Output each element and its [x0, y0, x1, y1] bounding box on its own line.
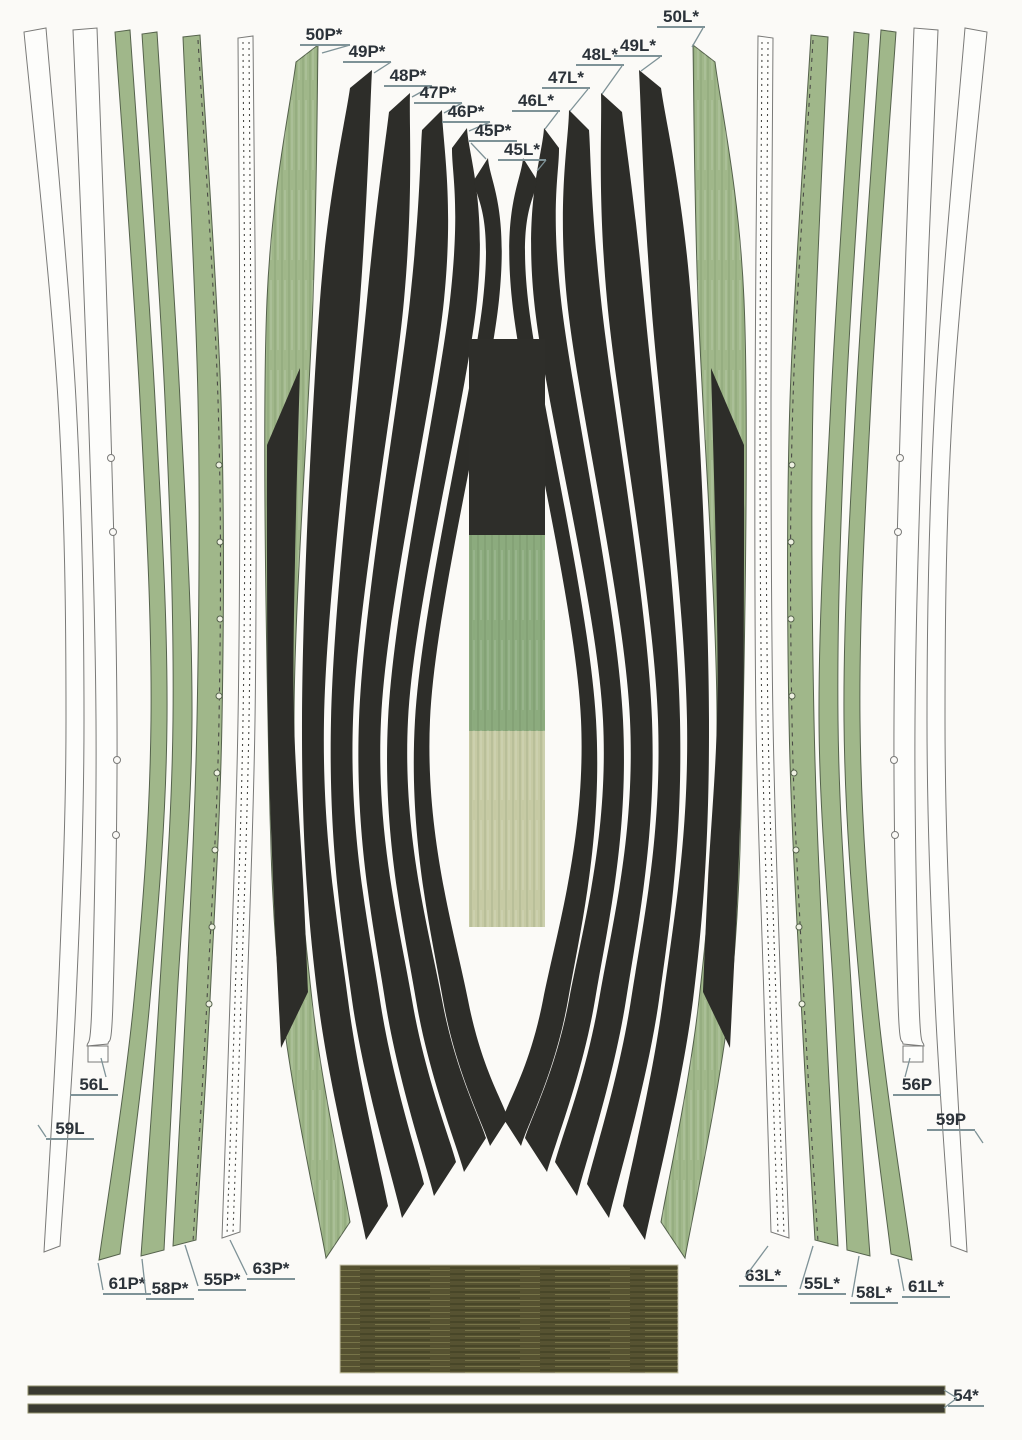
label-59L-text: 59L — [55, 1119, 84, 1138]
label-61L-text: 61L* — [908, 1277, 944, 1296]
label-56L-text: 56L — [79, 1075, 108, 1094]
rivet-dot — [217, 539, 223, 545]
label-46P-text: 46P* — [448, 102, 485, 121]
rivet-dot — [209, 924, 215, 930]
label-61P-text: 61P* — [109, 1274, 146, 1293]
label-59P-text: 59P — [936, 1110, 966, 1129]
swatch-green-grain — [469, 535, 545, 731]
label-46L-text: 46L* — [518, 91, 554, 110]
label-47P-text: 47P* — [420, 83, 457, 102]
strip-56-end-tab — [88, 1046, 108, 1062]
edge-notch — [110, 529, 117, 536]
rivet-dot — [216, 693, 222, 699]
rivet-dot — [217, 616, 223, 622]
rivet-dot — [212, 847, 218, 853]
label-58P-text: 58P* — [152, 1279, 189, 1298]
batten-upper — [28, 1386, 945, 1395]
label-55P-text: 55P* — [204, 1270, 241, 1289]
parts-sheet-canvas: 50P* 49P* 48P* 47P* 46P* 45P* — [0, 0, 1022, 1440]
batten-lower — [28, 1404, 945, 1413]
swatch-dark — [469, 339, 545, 535]
label-56P-text: 56P — [902, 1075, 932, 1094]
label-50P-text: 50P* — [306, 25, 343, 44]
swatch-light-grain — [469, 731, 545, 927]
label-50L-text: 50L* — [663, 7, 699, 26]
wood-texture-panel — [340, 1265, 678, 1373]
center-swatch-column — [469, 339, 545, 927]
label-54-text: 54* — [953, 1386, 979, 1405]
label-63P-text: 63P* — [253, 1259, 290, 1278]
rivet-dot — [216, 462, 222, 468]
label-49P-text: 49P* — [349, 42, 386, 61]
wood-panel-grain — [340, 1265, 678, 1373]
label-55L-text: 55L* — [804, 1274, 840, 1293]
label-45P-text: 45P* — [475, 121, 512, 140]
rivet-dot — [214, 770, 220, 776]
label-47L-text: 47L* — [548, 68, 584, 87]
label-48L-text: 48L* — [582, 45, 618, 64]
label-49L-text: 49L* — [620, 36, 656, 55]
rivet-dot — [206, 1001, 212, 1007]
label-45L-text: 45L* — [504, 140, 540, 159]
edge-notch — [113, 832, 120, 839]
edge-notch — [114, 757, 121, 764]
edge-notch — [108, 455, 115, 462]
parts-sheet: 50P* 49P* 48P* 47P* 46P* 45P* — [0, 0, 1022, 1440]
label-58L-text: 58L* — [856, 1283, 892, 1302]
